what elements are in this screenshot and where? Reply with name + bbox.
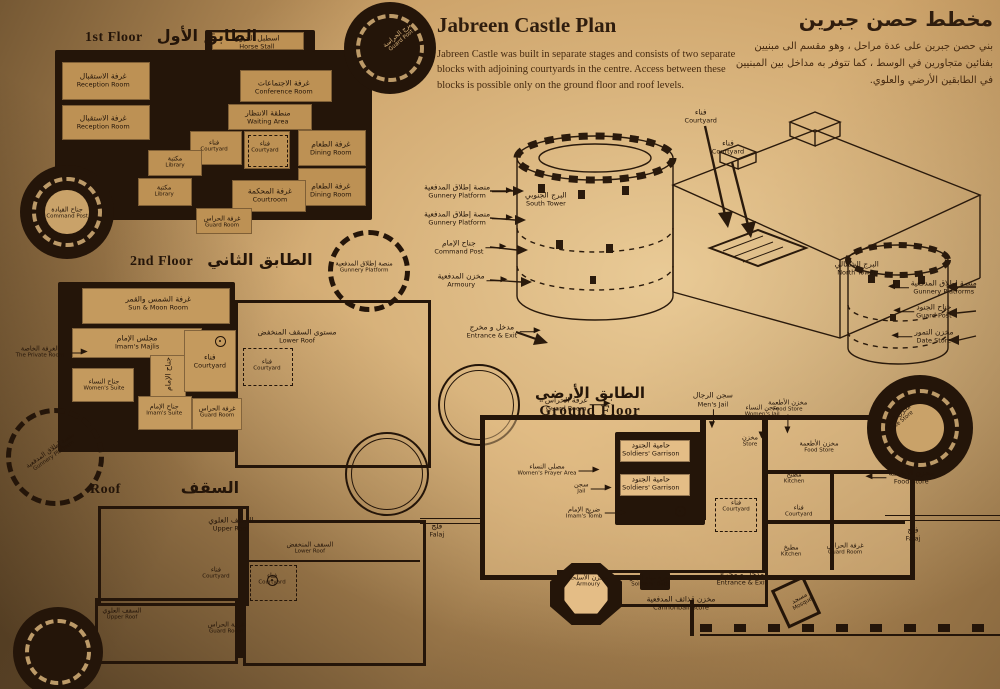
label-armoury: مخزن الأسلحةArmoury — [569, 574, 608, 589]
label-soldiers-bath: حجرة مياه الجنودSoldiers' Bath — [627, 574, 673, 589]
label-falaj: فلجFalaj — [429, 521, 444, 539]
label-command-post: جناح القيادةCommand Post — [46, 206, 88, 221]
label-gunnery-platform: منصة إطلاق المدفعيةGunnery Platform — [424, 209, 490, 227]
label-courtyard: فناءCourtyard — [685, 107, 717, 125]
second-floor-title-en: 2nd Floor — [130, 255, 193, 269]
label-dining-room: غرفة الطعامDining Room — [310, 139, 352, 157]
label-entrance-exit: مدخل و مخرجEntrance & Exit — [467, 322, 518, 340]
label-courtyard: فناءCourtyard — [785, 504, 812, 519]
roof-title-en: Roof — [90, 483, 121, 497]
isometric-view: منصة إطلاق المدفعيةGunnery Platformمنصة … — [420, 100, 1000, 400]
page-title-arabic: مخطط حصن جبرين — [735, 8, 993, 30]
label-gunnery-platform: منصة إطلاق المدفعيةGunnery Platform — [24, 430, 80, 475]
label-soldiers-garrison: حامية الجنودSoldiers' Garrison — [622, 474, 679, 492]
label-courtyard: فناءCourtyard — [251, 139, 278, 154]
label-mosque: مسجدMosque — [788, 589, 814, 613]
label-imam-s-majlis: مجلس الإمامImam's Majlis — [115, 333, 159, 351]
label-food-store: مخزن الأطعمةFood Store — [889, 468, 934, 486]
intro-paragraph-arabic: بني حصن جبرين على عدة مراحل ، وهو مقسم ا… — [735, 38, 993, 89]
label-upper-roof: السقف العلويUpper Roof — [102, 607, 141, 622]
label-gunnery-platforms: منصة إطلاق المدفعيةGunnery Platforms — [911, 278, 977, 296]
label-reception-room: غرفة الاستقبالReception Room — [77, 113, 130, 131]
label-courtyard: فناءCourtyard — [722, 499, 749, 514]
label-women-s-suite: جناح النساءWomen's Suite — [84, 377, 125, 392]
label-upper-roof: السقف العلويUpper Roof — [208, 515, 253, 533]
label-guard-room: غرفة الحراسGuard Room — [208, 620, 245, 635]
label-gunnery-platform: منصة إطلاق المدفعيةGunnery Platform — [424, 182, 490, 200]
label-soldiers-garrison: حامية الجنودSoldiers' Garrison — [622, 440, 679, 458]
label-entrance-exit: مدخل و مخرجEntrance & Exit — [717, 569, 768, 587]
first-floor-title-ar: الطابق الأول — [157, 28, 257, 44]
label-imam-s-tomb: ضريح الإمامImam's Tomb — [566, 505, 602, 520]
ground-floor-plan: الطابق الأرضي Ground Floor غرفة الحراسGu… — [420, 378, 1000, 689]
label-women-s-prayer-area: مصلى النساءWomen's Prayer Area — [518, 463, 577, 478]
castle-plan-panel: Jabreen Castle Plan Jabreen Castle was b… — [0, 0, 1000, 689]
intro-paragraph: Jabreen Castle was built in separate sta… — [437, 47, 737, 93]
label-reception-room: غرفة الاستقبالReception Room — [77, 71, 130, 89]
label-kitchen: مطبخKitchen — [784, 471, 805, 486]
label-guard-post: جناح الجنودGuard Post — [916, 302, 952, 320]
roof-plan: Roof السقف السقف العلويUpper Roofالسقف ا… — [20, 470, 445, 689]
label-courtyard: فناءCourtyard — [200, 139, 227, 154]
label-courtroom: غرفة المحكمةCourtroom — [248, 186, 292, 204]
label-courtyard: فناءCourtyard — [253, 358, 280, 373]
label-gunnery-platform: منصة إطلاق المدفعيةGunnery Platform — [336, 260, 393, 275]
label-armoury: مخزن المدفعيةArmoury — [438, 271, 485, 289]
label-north-tower: البرج الشماليNorth Tower — [835, 259, 879, 277]
first-floor-title: 1st Floor الطابق الأول — [85, 28, 257, 45]
label-store: مخزنStore — [742, 434, 758, 449]
label-library: مكتبةLibrary — [165, 154, 184, 169]
label-command-post: جناح الإمامCommand Post — [434, 238, 483, 256]
label-library: مكتبةLibrary — [154, 184, 173, 199]
main-title-block: Jabreen Castle Plan Jabreen Castle was b… — [437, 14, 737, 93]
label-lower-roof: السقف المنخفضLower Roof — [287, 540, 334, 555]
label-date-store: مخزن التمورDate Store — [914, 327, 953, 345]
label-food-store: مخزن الأطعمةFood Store — [799, 440, 838, 455]
label-imam-s-suite: جناح الإمامImam's Suite — [146, 402, 182, 417]
ground-floor-title-ar: الطابق الأرضي — [530, 384, 650, 402]
label-kitchen: مطبخKitchen — [781, 543, 802, 558]
label-the-private-room: الغرفة الخاصةThe Private Room — [16, 345, 65, 360]
label-courtyard: فناءCourtyard — [258, 572, 285, 587]
label-sun-moon-room: غرفة الشمس والقمرSun & Moon Room — [125, 294, 191, 312]
label-cannonball-store: مخزن قذائف المدفعيةCannonball Store — [647, 594, 716, 612]
label-jail: سجنJail — [574, 481, 589, 496]
label-dining-room: غرفة الطعامDining Room — [310, 181, 352, 199]
label-conference-room: غرفة الاجتماعاتConference Room — [255, 78, 313, 96]
first-floor-labels: اسطبل الخيولHorse Stallبرج الحراسةGuard … — [15, 28, 435, 240]
label-waiting-area: منطقة الانتظارWaiting Area — [245, 108, 290, 126]
page-title: Jabreen Castle Plan — [437, 14, 737, 37]
first-floor-plan: 1st Floor الطابق الأول اسطبل الخيولHorse… — [15, 28, 435, 240]
label-men-s-jail: سجن الرجالMen's Jail — [693, 390, 733, 408]
roof-labels: السقف العلويUpper Roofالسقف المنخفضLower… — [20, 470, 445, 689]
arabic-title-block: مخطط حصن جبرين بني حصن جبرين على عدة مرا… — [735, 8, 993, 89]
label-courtyard: فناءCourtyard — [194, 352, 226, 370]
label-courtyard: فناءCourtyard — [202, 565, 229, 580]
label-falaj: فلجFalaj — [906, 525, 921, 543]
first-floor-title-en: 1st Floor — [85, 31, 143, 45]
label-guard-room: غرفة الحراسGuard Room — [827, 542, 864, 557]
label-courtyard: فناءCourtyard — [712, 138, 744, 156]
ground-floor-title-en: Ground Floor — [530, 402, 650, 420]
label-label-ar: جناح الإمام — [163, 357, 172, 391]
ground-floor-title: الطابق الأرضي Ground Floor — [530, 384, 650, 420]
second-floor-title-ar: الطابق الثاني — [207, 252, 312, 268]
label-lower-roof: مستوى السقف المنخفضLower Roof — [258, 327, 337, 345]
second-floor-title: 2nd Floor الطابق الثاني — [130, 252, 313, 269]
isometric-labels: منصة إطلاق المدفعيةGunnery Platformمنصة … — [420, 100, 1000, 400]
roof-title-ar: السقف — [181, 480, 239, 496]
label-guard-room: غرفة الحراسGuard Room — [204, 214, 241, 229]
label-south-tower: البرج الجنوبيSouth Tower — [525, 190, 567, 208]
label-food-store: مخزن الأطعمةFood Store — [768, 398, 807, 413]
roof-title: Roof السقف — [90, 480, 239, 497]
label-guard-room: غرفة الحراسGuard Room — [199, 405, 236, 420]
